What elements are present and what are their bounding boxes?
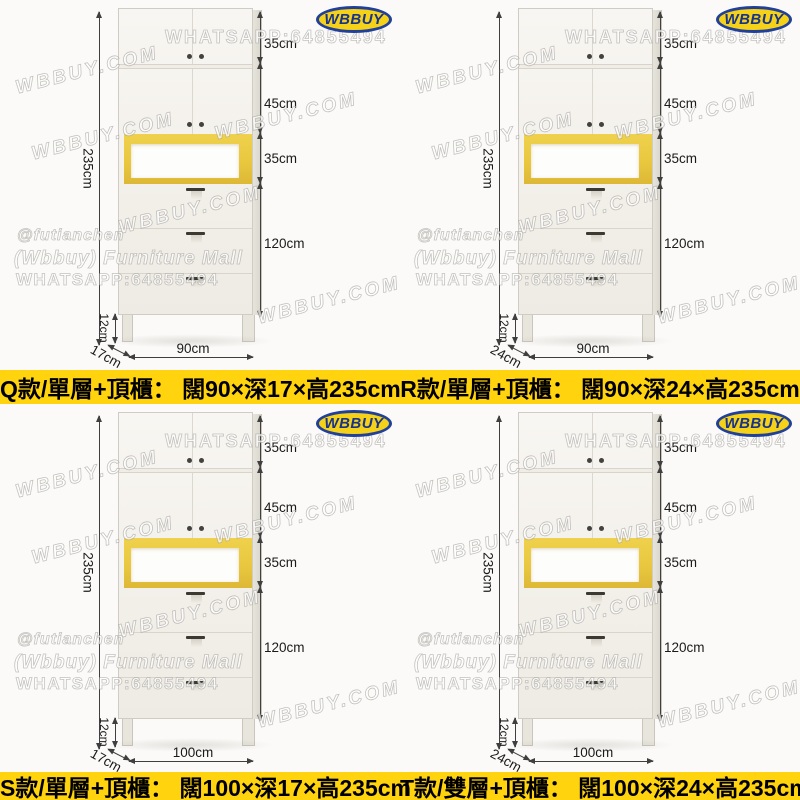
watermark-mall: (Wbbuy) Furniture Mall (14, 248, 243, 270)
watermark-whatsapp-small: WHATSAPP:64855494 (416, 674, 619, 694)
door-knob (187, 458, 192, 463)
open-shelf-label: 35cm (264, 151, 297, 166)
open-shelf-arrow (660, 537, 661, 587)
caption-variant-r: R款/單層+頂櫃： 闊90×深24×高235cm (400, 370, 800, 404)
watermark-whatsapp-small: WHATSAPP:64855494 (16, 674, 219, 694)
variant-panel-r: WHATSAPP:64855494 WBBUY.COM WBBUY.COM WB… (400, 0, 800, 370)
door-knob (187, 122, 192, 127)
watermark-mall: (Wbbuy) Furniture Mall (414, 248, 643, 270)
door-knob (599, 54, 604, 59)
caption-bar-bottom: S款/單層+頂櫃： 闊100×深17×高235cm T款/雙層+頂櫃： 闊100… (0, 772, 800, 800)
wbbuy-logo-text: WBBUY (324, 415, 383, 432)
cabinet-illustration (400, 0, 800, 370)
door-knob (587, 54, 592, 59)
width-arrow (129, 761, 253, 762)
drawer-section-label: 120cm (264, 236, 305, 251)
caption-variant-q: Q款/單層+頂櫃： 闊90×深17×高235cm (0, 370, 400, 404)
open-shelf-label: 35cm (264, 555, 297, 570)
open-shelf-interior (131, 548, 239, 582)
door-knob (599, 526, 604, 531)
variant-panel-s: WHATSAPP:64855494 WBBUY.COM WBBUY.COM WB… (0, 404, 400, 774)
open-shelf-interior (131, 144, 239, 178)
watermark-handle: @futianchen (17, 227, 125, 245)
wbbuy-logo-text: WBBUY (724, 11, 783, 28)
drawer-handle-pocket (191, 639, 202, 647)
door-knob (187, 54, 192, 59)
wbbuy-logo: WBBUY (716, 410, 792, 437)
watermark-handle: @futianchen (417, 227, 525, 245)
drawer-handle-pocket (591, 235, 602, 243)
caption-variant-s: S款/單層+頂櫃： 闊100×深17×高235cm (0, 769, 400, 800)
drawer-handle-pocket (591, 639, 602, 647)
door-knob (199, 458, 204, 463)
open-shelf-interior (531, 144, 639, 178)
door-knob (199, 54, 204, 59)
cabinet-illustration (0, 404, 400, 774)
width-label: 100cm (563, 745, 623, 760)
caption-variant-t: T款/雙層+頂櫃： 闊100×深24×高235cm (400, 769, 800, 800)
cabinet-illustration (400, 404, 800, 774)
wbbuy-logo: WBBUY (316, 410, 392, 437)
width-arrow (129, 357, 253, 358)
drawer-section-label: 120cm (264, 640, 305, 655)
door-knob (599, 458, 604, 463)
wbbuy-logo-text: WBBUY (724, 415, 783, 432)
drawer-handle-pocket (191, 235, 202, 243)
variant-panel-q: WHATSAPP:64855494 WBBUY.COM WBBUY.COM WB… (0, 0, 400, 370)
leg-arrow (115, 314, 116, 343)
leg-arrow (515, 314, 516, 343)
watermark-handle: @futianchen (417, 631, 525, 649)
open-shelf-label: 35cm (664, 151, 697, 166)
open-shelf-arrow (260, 537, 261, 587)
door-knob (587, 526, 592, 531)
width-label: 100cm (163, 745, 223, 760)
door-knob (587, 458, 592, 463)
door-knob (599, 122, 604, 127)
width-arrow (529, 357, 653, 358)
wbbuy-logo: WBBUY (316, 6, 392, 33)
door-knob (187, 526, 192, 531)
leg-arrow (515, 718, 516, 747)
caption-bar-top: Q款/單層+頂櫃： 闊90×深17×高235cm R款/單層+頂櫃： 闊90×深… (0, 370, 800, 404)
open-shelf-interior (531, 548, 639, 582)
door-knob (199, 122, 204, 127)
watermark-whatsapp-small: WHATSAPP:64855494 (416, 270, 619, 290)
watermark-whatsapp-small: WHATSAPP:64855494 (16, 270, 219, 290)
drawer-section-label: 120cm (664, 236, 705, 251)
wbbuy-logo: WBBUY (716, 6, 792, 33)
variant-panel-t: WHATSAPP:64855494 WBBUY.COM WBBUY.COM WB… (400, 404, 800, 774)
open-shelf-arrow (660, 133, 661, 183)
open-shelf-arrow (260, 133, 261, 183)
watermark-handle: @futianchen (17, 631, 125, 649)
cabinet-illustration (0, 0, 400, 370)
door-knob (199, 526, 204, 531)
leg-arrow (115, 718, 116, 747)
width-arrow (529, 761, 653, 762)
watermark-mall: (Wbbuy) Furniture Mall (414, 652, 643, 674)
door-knob (587, 122, 592, 127)
watermark-mall: (Wbbuy) Furniture Mall (14, 652, 243, 674)
width-label: 90cm (163, 341, 223, 356)
wbbuy-logo-text: WBBUY (324, 11, 383, 28)
open-shelf-label: 35cm (664, 555, 697, 570)
drawer-section-label: 120cm (664, 640, 705, 655)
width-label: 90cm (563, 341, 623, 356)
product-size-sheet: WHATSAPP:64855494 WBBUY.COM WBBUY.COM WB… (0, 0, 800, 800)
